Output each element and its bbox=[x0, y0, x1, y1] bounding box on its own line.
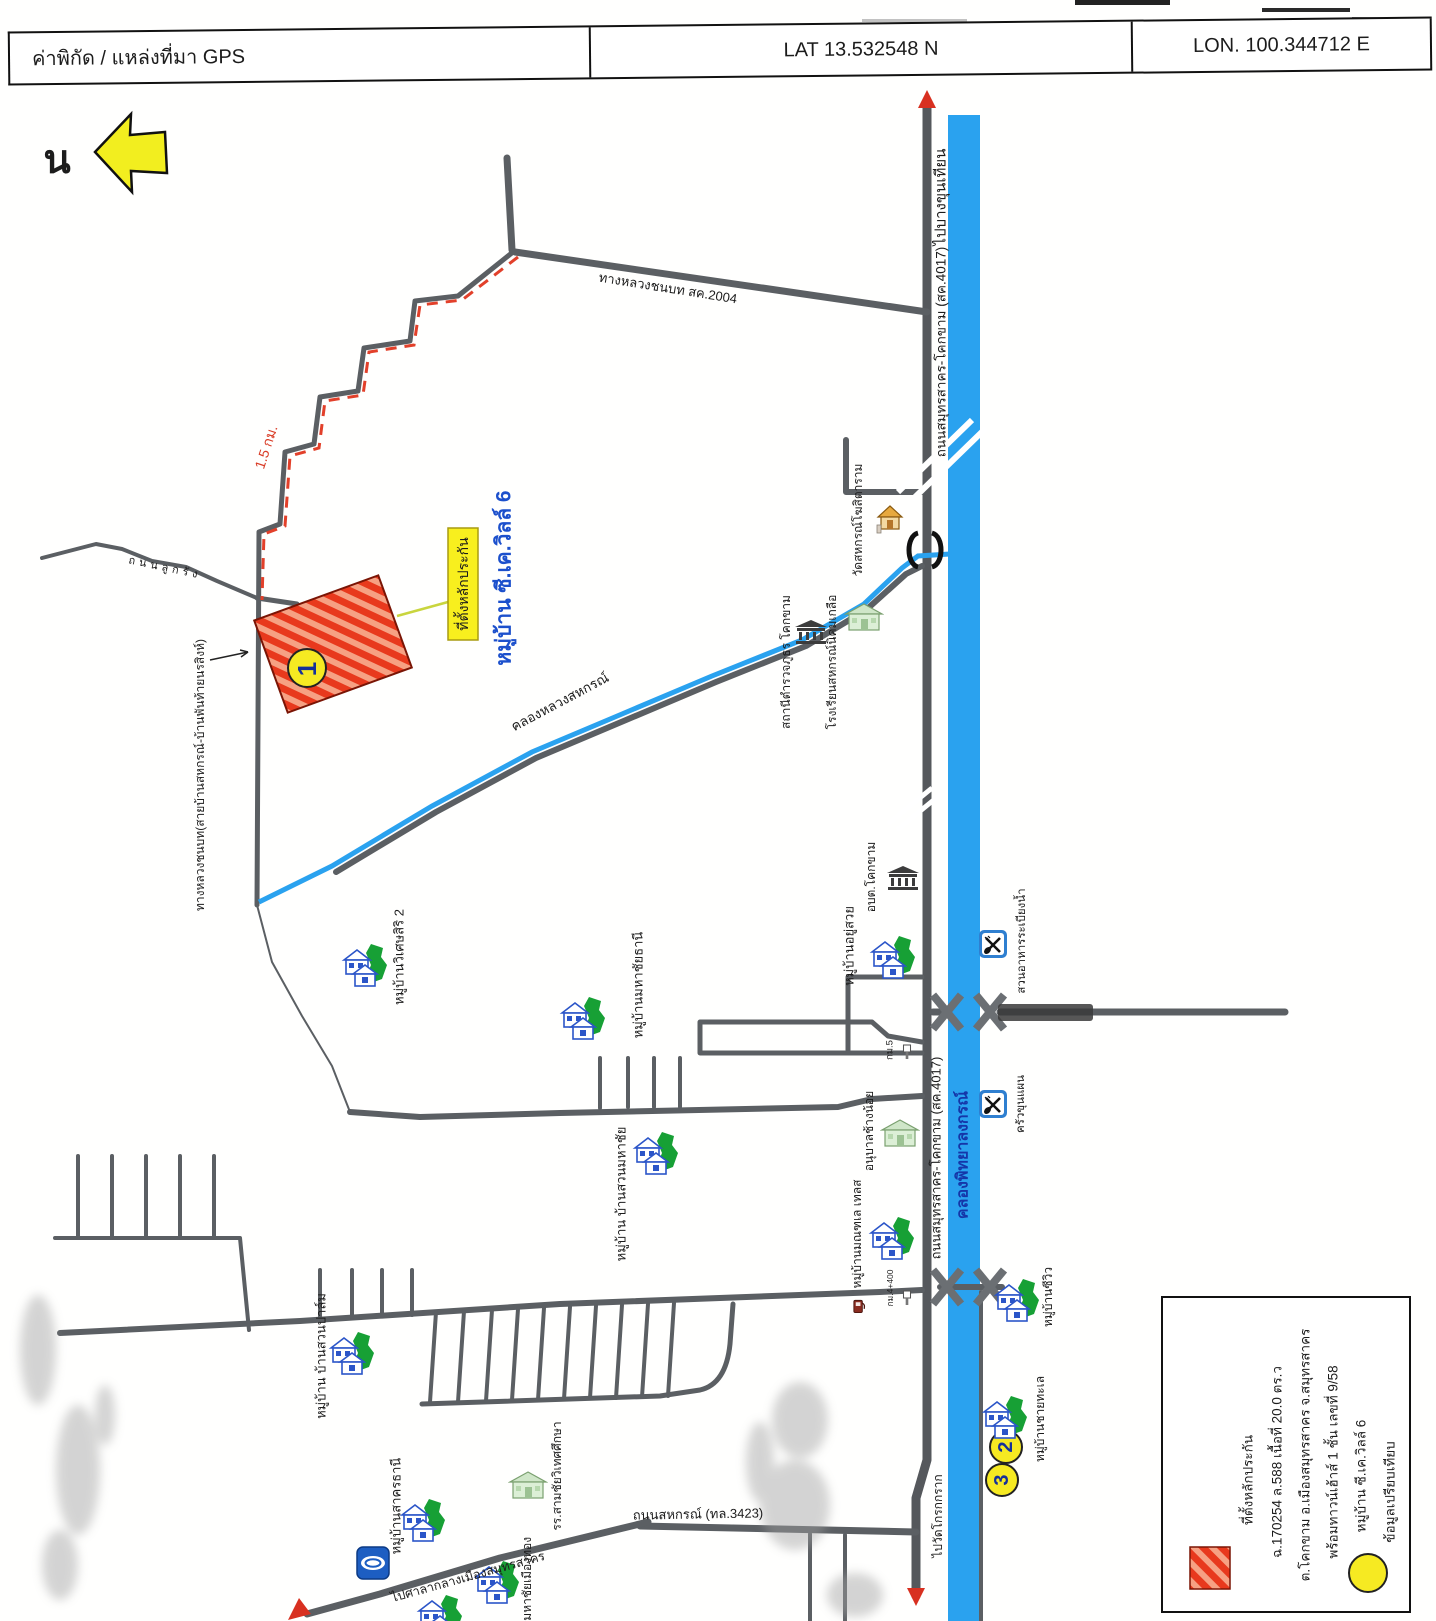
collateral-parcel bbox=[254, 575, 412, 712]
arrow-north-icon bbox=[918, 90, 936, 108]
village-monthale-label: หมู่บ้านมณฑเล เทลส bbox=[850, 1179, 865, 1289]
village-icon bbox=[402, 1499, 445, 1541]
censored-blur bbox=[20, 1295, 56, 1405]
village-mahachaithani-label: หมู่บ้านมหาชัยธานี bbox=[631, 932, 647, 1039]
road-thin-south bbox=[257, 905, 350, 1112]
censored-blur bbox=[746, 1422, 774, 1502]
road-small-grid bbox=[55, 1156, 249, 1330]
village-yusuai-label: หมู่บ้านอยู่สวย bbox=[842, 906, 858, 986]
gas-station-sign-icon bbox=[357, 1547, 389, 1579]
restaurant-khunphaen-label: ครัวขุนแผน bbox=[1015, 1075, 1027, 1133]
school-icon bbox=[846, 604, 882, 630]
km-post-icon bbox=[904, 1291, 911, 1305]
to-bangkhunthian-label: ไปบางขุนเทียน bbox=[932, 149, 951, 247]
to-wat-krokkrak-label: ไปวัดโกรกกราก bbox=[931, 1474, 945, 1558]
village-icon bbox=[331, 1332, 374, 1374]
north-arrow-icon bbox=[95, 114, 167, 192]
village-icon bbox=[344, 944, 387, 986]
temple-icon bbox=[877, 506, 902, 533]
road-grid-bottom bbox=[422, 1304, 733, 1404]
village-icon bbox=[871, 1217, 914, 1259]
village-bansuanmahachai-label: หมู่บ้าน บ้านสวนมหาชัย bbox=[614, 1127, 630, 1262]
road-1112-sois bbox=[600, 1058, 680, 1108]
gas-station-icon bbox=[854, 1300, 865, 1312]
anuban-changnoi-label: อนุบาลช้างน้อย bbox=[862, 1091, 877, 1171]
censored-blur bbox=[827, 1573, 883, 1617]
arrow-south-icon bbox=[907, 1588, 925, 1606]
censored-blur bbox=[56, 1405, 100, 1535]
village-bansuanpalm-label: หมู่บ้าน บ้านสวนปาล์ม bbox=[314, 1293, 330, 1419]
wat-sahakon-label: วัดสหกรณ์โฆสิตาราม bbox=[851, 464, 865, 577]
legend-comparable-circle bbox=[1349, 1554, 1387, 1592]
collateral-tag-label: ที่ตั้งหลักประกัน bbox=[453, 537, 471, 631]
village-mueangthong-label: หมู่บ้านมหาชัยเมืองทอง bbox=[520, 1537, 535, 1621]
village-sakhonthani-label: หมู่บ้านสาครธานี bbox=[389, 1458, 405, 1555]
village-seaview-label: หมู่บ้านซีวิว bbox=[1041, 1267, 1056, 1327]
north-letter: น bbox=[43, 138, 70, 182]
map-canvas: นทางหลวงชนบท สค.2004ไปบางขุนเทียนถนนสมุท… bbox=[0, 0, 1436, 1621]
village-chaithale-label: หมู่บ้านชายทะเล bbox=[1033, 1376, 1048, 1462]
school-icon bbox=[882, 1120, 918, 1146]
village-icon bbox=[872, 936, 915, 978]
sahakon-road-label: ถนนสหกรณ์ (ทล.3423) bbox=[633, 1505, 764, 1522]
legend-line4: พร้อมทาวน์เฮ้าส์ 1 ชั้น เลขที่ 9/58 bbox=[1323, 1365, 1341, 1558]
road-4017-label-top: ถนนสมุทรสาคร-โคกขาม (สค.4017) bbox=[933, 247, 950, 457]
tag-leader-line bbox=[397, 602, 448, 616]
legend-line2: ฉ.170254 ล.588 เนื้อที่ 20.0 ตร.ว bbox=[1267, 1366, 1285, 1558]
village-ckville-label: หมู่บ้าน ซี.เค.วิลล์ 6 bbox=[492, 490, 518, 665]
village-icon bbox=[562, 997, 605, 1039]
parcel-number: 1 bbox=[292, 662, 322, 676]
village-icon bbox=[984, 1396, 1027, 1438]
bridge-bracket-icon bbox=[932, 533, 941, 567]
restaurant-rabiangnam-label: สวนอาหารระเบียงน้ำ bbox=[1013, 888, 1028, 993]
comparable-2-number: 2 bbox=[995, 1441, 1017, 1452]
khlong-phitthayalongkon-label: คลองพิทยาลงกรณ์ bbox=[953, 1091, 972, 1219]
rural-highway-label: ทางหลวงชนบท(สายบ้านสหกรณ์-บ้านพันท้ายนรส… bbox=[193, 639, 207, 911]
restaurant-sign-icon bbox=[979, 930, 1007, 958]
road-1112 bbox=[350, 1096, 922, 1117]
road-grid-verticals bbox=[430, 1303, 674, 1402]
censored-blur bbox=[772, 1382, 828, 1458]
legend-line1: ที่ตั้งหลักประกัน bbox=[1238, 1435, 1256, 1525]
gravel-road-label: ถนนลูกรัง bbox=[127, 554, 202, 581]
village-wisetsiri-label: หมู่บ้านวิเศษสิริ 2 bbox=[392, 909, 408, 1005]
road-4017-label-bottom: ถนนสมุทรสาคร-โคกขาม (สค.4017) bbox=[929, 1057, 945, 1260]
km-post-icon bbox=[904, 1045, 911, 1059]
km4400-label: กม.4+400 bbox=[885, 1269, 895, 1306]
government-building-icon bbox=[887, 866, 919, 890]
school-sahakon-label: โรงเรียนสหกรณ์นิคมเกลือ bbox=[825, 595, 839, 730]
comparable-3-number: 3 bbox=[991, 1474, 1013, 1485]
village-icon bbox=[635, 1132, 678, 1174]
police-station-label: สถานีตำรวจภูธร โคกขาม bbox=[779, 595, 794, 729]
bridge-bracket-icon bbox=[909, 533, 918, 567]
legend-line5: หมู่บ้าน ซี.เค.วิลล์ 6 bbox=[1353, 1420, 1370, 1533]
legend-line6: ข้อมูลเปรียบเทียบ bbox=[1383, 1441, 1399, 1542]
village-icon bbox=[419, 1595, 462, 1621]
school-icon bbox=[510, 1472, 546, 1498]
samchai-school-label: รร.สามชัยวิเทศศึกษา bbox=[550, 1421, 564, 1530]
road-4017-main bbox=[916, 102, 927, 1596]
obt-khokkham-label: อบต.โคกขาม bbox=[864, 842, 878, 913]
km5-label: กม.5 bbox=[885, 1040, 896, 1060]
route-dashed bbox=[262, 257, 518, 600]
restaurant-sign-icon bbox=[979, 1090, 1007, 1118]
bridge-slash-icon bbox=[888, 788, 941, 830]
legend-line3: ต.โคกขาม อ.เมืองสมุทรสาคร จ.สมุทรสาคร bbox=[1297, 1329, 1314, 1582]
route-distance-label: 1.5 กม. bbox=[251, 423, 280, 471]
censored-blur bbox=[95, 1385, 115, 1445]
road-gravel bbox=[42, 544, 257, 598]
road-grid-top-sois bbox=[320, 1270, 412, 1318]
scanned-map-page: ค่าพิกัด / แหล่งที่มา GPS LAT 13.532548 … bbox=[0, 0, 1436, 1621]
legend-collateral-swatch bbox=[1190, 1547, 1230, 1589]
blurred-road-label bbox=[998, 1004, 1093, 1021]
censored-blur bbox=[42, 1530, 78, 1600]
canal-phitthayalongkon bbox=[948, 115, 980, 1621]
